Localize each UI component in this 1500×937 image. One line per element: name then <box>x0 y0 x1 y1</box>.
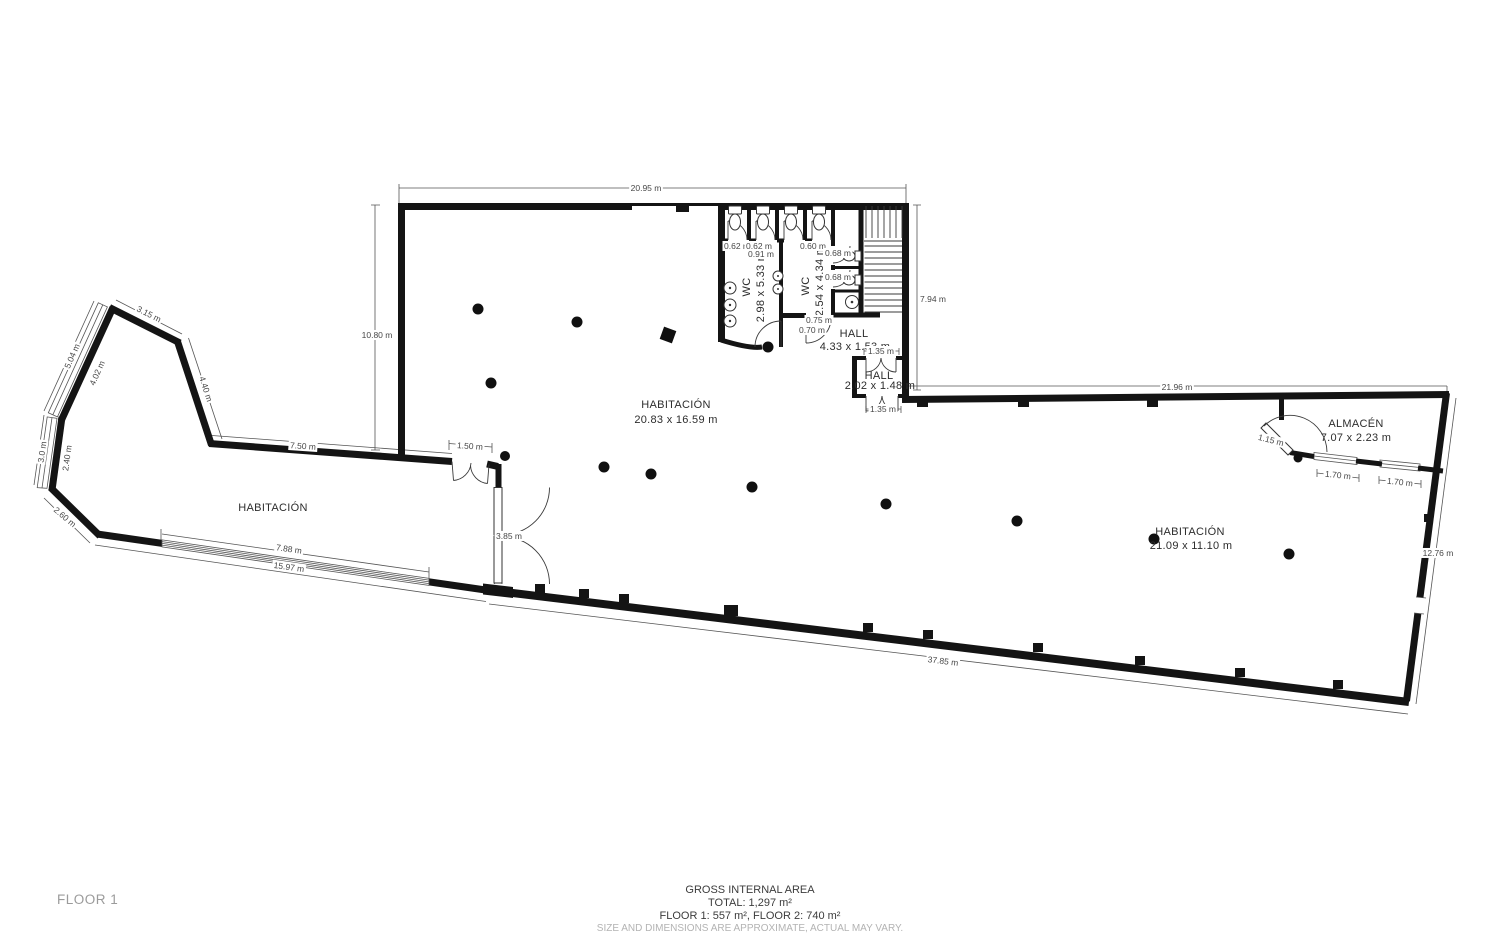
wall-junction-block <box>483 584 513 599</box>
svg-text:HABITACIÓN: HABITACIÓN <box>641 398 710 411</box>
plan-labels: HABITACIÓNHABITACIÓN20.83 x 16.59 mHABIT… <box>35 183 1455 668</box>
top-wall-pier <box>676 203 689 212</box>
window-170-b <box>1380 460 1420 471</box>
room-label-wc1: WC <box>741 278 753 297</box>
dim-385: 3.85 m <box>495 531 524 541</box>
windows <box>37 303 1426 614</box>
svg-text:WC: WC <box>741 278 753 297</box>
floor-plan: HABITACIÓNHABITACIÓN20.83 x 16.59 mHABIT… <box>0 0 1500 937</box>
dim-bottom: 37.85 m <box>926 654 961 668</box>
room-dims-wc1: 2.98 x 5.33 m <box>755 252 767 323</box>
dim-075: 0.75 m <box>805 315 834 325</box>
dim-240: 2.40 m <box>60 443 74 473</box>
svg-text:HABITACIÓN: HABITACIÓN <box>238 501 307 514</box>
room-label-hall: HALL <box>840 328 869 340</box>
dim-wing-top: 21.96 m <box>1160 382 1194 392</box>
dim-135-bottom: 1.35 m <box>869 404 898 414</box>
svg-text:0.70 m: 0.70 m <box>799 325 825 335</box>
interior-walls <box>721 203 1443 471</box>
svg-text:0.91 m: 0.91 m <box>748 249 774 259</box>
room-dims-hall2: 2.02 x 1.48 m <box>845 380 916 392</box>
total-area-value: TOTAL: 1,297 m² <box>0 897 1500 909</box>
dim-right-upper: 7.94 m <box>919 294 948 304</box>
dim-060: 0.60 m <box>799 241 828 251</box>
svg-text:1.70 m: 1.70 m <box>1387 476 1414 489</box>
svg-text:0.75 m: 0.75 m <box>806 315 832 325</box>
room-label-wc2: WC <box>800 277 812 296</box>
toilet-icon <box>757 206 770 230</box>
svg-text:1.50 m: 1.50 m <box>457 440 484 452</box>
svg-text:20.83 x 16.59 m: 20.83 x 16.59 m <box>634 414 717 426</box>
svg-text:21.96 m: 21.96 m <box>1162 382 1193 392</box>
room-dims-main-habitacion: 20.83 x 16.59 m <box>634 414 717 426</box>
svg-text:2.02 x 1.48 m: 2.02 x 1.48 m <box>845 380 916 392</box>
toilet-icon <box>729 206 742 230</box>
column <box>473 304 484 315</box>
dim-170-b: 1.70 m <box>1385 475 1415 488</box>
pilasters <box>535 399 1432 689</box>
dim-135-top: 1.35 m <box>867 346 896 356</box>
column <box>881 499 892 510</box>
gross-internal-area-title: GROSS INTERNAL AREA <box>0 884 1500 896</box>
svg-text:2.40 m: 2.40 m <box>60 444 74 471</box>
svg-text:21.09 x 11.10 m: 21.09 x 11.10 m <box>1150 540 1233 552</box>
svg-text:0.68 m: 0.68 m <box>825 248 851 258</box>
left-wing-top-wall <box>209 444 452 462</box>
dim-068-a: 0.68 m <box>824 248 853 258</box>
dim-068-b: 0.68 m <box>824 272 853 282</box>
column <box>1294 454 1303 463</box>
column <box>572 317 583 328</box>
sink-icon <box>724 282 736 294</box>
toilet-icon <box>846 296 859 309</box>
svg-text:0.68 m: 0.68 m <box>825 272 851 282</box>
svg-text:WC: WC <box>800 277 812 296</box>
per-floor-area-values: FLOOR 1: 557 m², FLOOR 2: 740 m² <box>0 910 1500 922</box>
door-leaf <box>494 488 502 535</box>
svg-text:1.15 m: 1.15 m <box>1257 432 1285 448</box>
column-square <box>660 327 677 344</box>
dim-right-lower: 12.76 m <box>1421 548 1455 558</box>
svg-text:1.35 m: 1.35 m <box>868 346 894 356</box>
svg-text:2.98 x 5.33 m: 2.98 x 5.33 m <box>755 252 767 323</box>
room-label-main-habitacion: HABITACIÓN <box>641 398 710 411</box>
svg-text:1.35 m: 1.35 m <box>870 404 896 414</box>
wing-top-wall <box>902 395 1449 400</box>
svg-text:ALMACÉN: ALMACÉN <box>1328 417 1383 430</box>
column <box>1012 516 1023 527</box>
floor-plan-canvas: HABITACIÓNHABITACIÓN20.83 x 16.59 mHABIT… <box>0 0 1500 937</box>
column <box>763 342 774 353</box>
svg-text:7.07 x 2.23 m: 7.07 x 2.23 m <box>1321 432 1392 444</box>
dim-750: 7.50 m <box>288 440 318 452</box>
column <box>646 469 657 480</box>
svg-text:0.60 m: 0.60 m <box>800 241 826 251</box>
room-dims-almacen: 7.07 x 2.23 m <box>1321 432 1392 444</box>
dim-170-a: 1.70 m <box>1323 468 1353 481</box>
svg-text:7.50 m: 7.50 m <box>290 440 317 452</box>
dim-window-788: 7.88 m <box>274 542 304 556</box>
room-label-left-habitacion: HABITACIÓN <box>238 501 307 514</box>
svg-text:1.70 m: 1.70 m <box>1325 469 1352 482</box>
toilet-icon <box>813 206 826 230</box>
dim-115: 1.15 m <box>1256 432 1287 449</box>
sink-icon <box>773 271 783 281</box>
column <box>1284 549 1295 560</box>
svg-text:3.85 m: 3.85 m <box>496 531 522 541</box>
svg-text:10.80 m: 10.80 m <box>362 330 393 340</box>
room-label-right-habitacion: HABITACIÓN <box>1155 525 1224 538</box>
window-170-a <box>1314 453 1357 465</box>
staircase <box>864 206 902 312</box>
svg-text:HABITACIÓN: HABITACIÓN <box>1155 525 1224 538</box>
column <box>500 451 510 461</box>
dim-150: 1.50 m <box>455 440 485 452</box>
bottom-wall <box>484 590 1409 703</box>
svg-text:7.94 m: 7.94 m <box>920 294 946 304</box>
disclaimer-text: SIZE AND DIMENSIONS ARE APPROXIMATE, ACT… <box>0 923 1500 934</box>
svg-text:37.85 m: 37.85 m <box>927 654 959 668</box>
room-label-almacen: ALMACÉN <box>1328 417 1383 430</box>
sink-icon <box>724 315 736 327</box>
svg-text:12.76 m: 12.76 m <box>1423 548 1454 558</box>
dim-091: 0.91 m <box>747 249 776 259</box>
column <box>747 482 758 493</box>
sink-icon <box>724 299 736 311</box>
dim-070: 0.70 m <box>798 325 827 335</box>
svg-text:20.95 m: 20.95 m <box>631 183 662 193</box>
svg-text:HALL: HALL <box>840 328 869 340</box>
toilet-icon <box>785 206 798 230</box>
sink-icon <box>773 284 783 294</box>
dim-top-width: 20.95 m <box>629 183 663 193</box>
door-leaf <box>494 536 502 583</box>
room-dims-right-habitacion: 21.09 x 11.10 m <box>1150 540 1233 552</box>
right-wall-opening <box>1414 597 1426 614</box>
almacen-south-wall <box>1290 453 1443 472</box>
dim-left-height: 10.80 m <box>360 330 394 340</box>
svg-text:7.88 m: 7.88 m <box>275 542 302 556</box>
column <box>486 378 497 389</box>
column <box>599 462 610 473</box>
